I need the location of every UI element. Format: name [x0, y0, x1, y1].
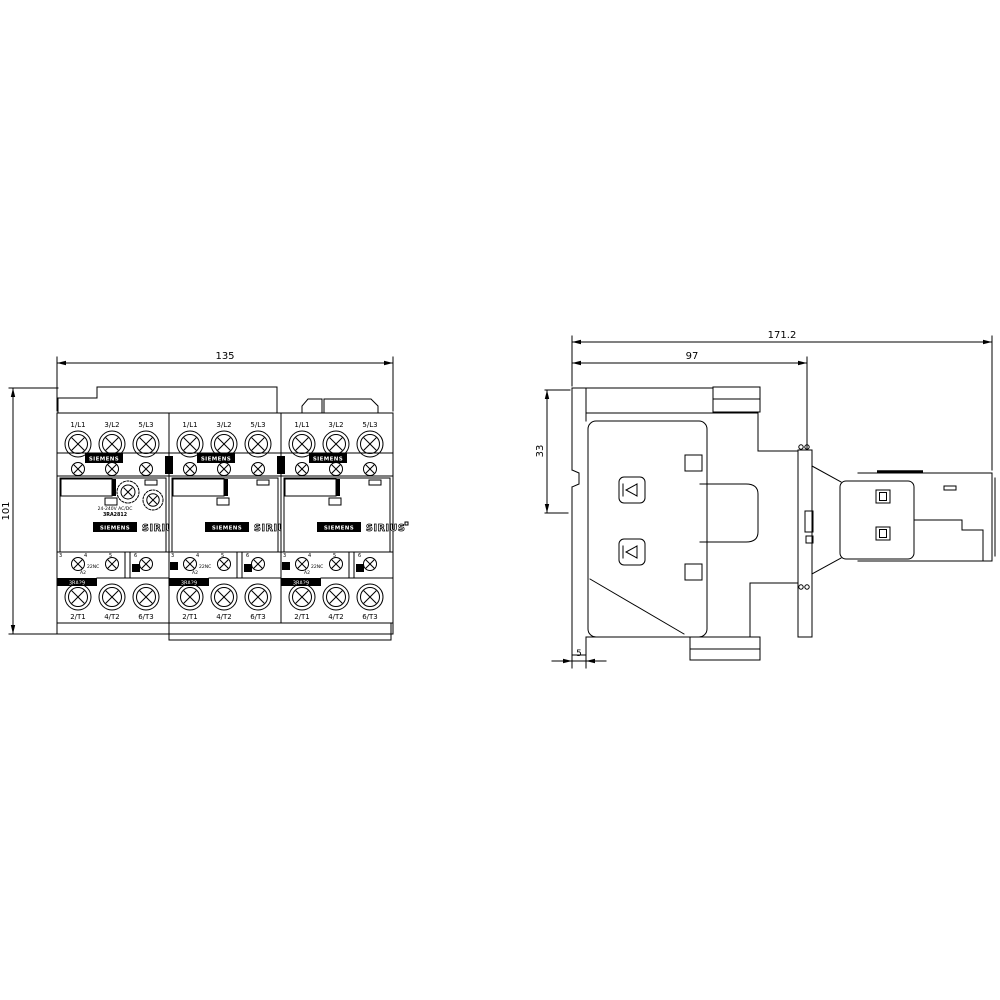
brand-nameplate-text: SIEMENS — [313, 457, 343, 463]
armature-hump — [700, 484, 758, 542]
coil-terminal-label: A2 — [80, 570, 86, 576]
function-module-part-number: 3RA2812 — [103, 512, 127, 518]
dimension-drawing-canvas: 135 101 1/L1 3/L2 5/L3 SI — [0, 0, 1000, 1000]
terminal-number: 3 — [283, 553, 286, 559]
arrowhead-down-icon — [11, 625, 15, 634]
trademark-square-icon — [405, 522, 408, 525]
rail-release-funnel-icon — [619, 539, 645, 565]
front-height-dimension: 101 — [1, 388, 58, 634]
top-terminal-cover — [713, 399, 760, 412]
bottom-mounting-strip — [57, 623, 393, 640]
terminal-label: 6/T3 — [250, 613, 266, 621]
side-clip-width-label: 5 — [576, 649, 582, 659]
screw-icon — [799, 445, 803, 449]
arrowhead-right-icon — [983, 340, 992, 344]
timer-module-body — [840, 481, 914, 559]
terminal-number: 6 — [358, 553, 361, 559]
terminal-label: 4/T2 — [216, 613, 232, 621]
terminal-label: 2/T1 — [294, 613, 310, 621]
arrowhead-left-icon — [586, 659, 595, 663]
terminal-number: 6 — [246, 553, 249, 559]
side-clip-width-dimension: 5 — [552, 649, 606, 668]
terminal-label: 1/L1 — [70, 421, 85, 429]
terminal-number: 4 — [196, 553, 199, 559]
arrowhead-left-icon — [572, 361, 581, 365]
front-height-label: 101 — [1, 501, 12, 520]
side-view-function-module — [812, 466, 995, 574]
bottom-terminal-cover — [690, 649, 760, 660]
side-total-depth-dimension: 171.2 — [572, 330, 992, 470]
screw-icon — [805, 585, 809, 589]
terminal-label: 5/L3 — [250, 421, 265, 429]
terminal-label: 1/L1 — [294, 421, 309, 429]
module-slot — [944, 486, 956, 490]
function-module-voltage: 24-240V AC/DC — [98, 506, 133, 512]
side-total-depth-label: 171.2 — [768, 330, 797, 341]
brand-badge-text: SIEMENS — [212, 526, 242, 532]
label-window — [173, 479, 224, 496]
screw-icon — [799, 585, 803, 589]
brand-badge-text: SIEMENS — [324, 526, 354, 532]
side-vent-window — [685, 455, 702, 471]
side-base-depth-dimension: 97 — [572, 351, 807, 449]
front-width-label: 135 — [215, 351, 234, 362]
aux-contact-label: 22NC — [87, 564, 99, 570]
front-width-dimension: 135 — [57, 351, 393, 411]
contactor-module-2: 1/L1 3/L2 5/L3 SIEMENS SIEMENS SIRIUS — [169, 413, 296, 623]
terminal-label: 6/T3 — [138, 613, 154, 621]
terminal-label: 1/L1 — [182, 421, 197, 429]
interlock-link-icon — [132, 564, 140, 572]
terminal-label: 5/L3 — [138, 421, 153, 429]
side-view-contactor-profile — [572, 387, 813, 660]
arrowhead-left-icon — [57, 361, 66, 365]
brand-nameplate-text: SIEMENS — [89, 457, 119, 463]
coil-terminal-label: A2 — [304, 570, 310, 576]
arrowhead-right-icon — [798, 361, 807, 365]
technical-drawing: 135 101 1/L1 3/L2 5/L3 SI — [0, 0, 1000, 1000]
terminal-label: 4/T2 — [328, 613, 344, 621]
terminal-label: 5/L3 — [362, 421, 377, 429]
top-terminal-cover — [713, 387, 760, 399]
din-clip-icon — [572, 388, 586, 655]
arrowhead-right-icon — [384, 361, 393, 365]
terminal-label: 2/T1 — [70, 613, 86, 621]
terminal-label: 3/L2 — [328, 421, 343, 429]
arrowhead-down-icon — [545, 504, 549, 513]
label-window — [61, 479, 112, 496]
coil-terminal-label: A2 — [192, 570, 198, 576]
aux-contact-label: 22NC — [311, 564, 323, 570]
side-rail-offset-dimension: 33 — [535, 390, 570, 513]
terminal-label: 3/L2 — [216, 421, 231, 429]
interlock-link-icon — [356, 564, 364, 572]
aux-contact-label: 22NC — [199, 564, 211, 570]
rail-release-funnel-icon — [619, 477, 645, 503]
terminal-number: 3 — [171, 553, 174, 559]
label-window — [285, 479, 336, 496]
arrowhead-left-icon — [572, 340, 581, 344]
arrowhead-up-icon — [11, 388, 15, 397]
contactor-module-1: 1/L1 3/L2 5/L3 SIEMENS — [57, 413, 184, 623]
terminal-label: 2/T1 — [182, 613, 198, 621]
brand-nameplate-text: SIEMENS — [201, 457, 231, 463]
interlock-link-icon — [244, 564, 252, 572]
side-rail-offset-label: 33 — [535, 445, 546, 458]
arrowhead-up-icon — [545, 390, 549, 399]
arrowhead-right-icon — [563, 659, 572, 663]
terminal-number: 4 — [84, 553, 87, 559]
terminal-number: 4 — [308, 553, 311, 559]
terminal-number: 3 — [59, 553, 62, 559]
bottom-terminal-cover — [690, 637, 760, 649]
contactor-module-3: 1/L1 3/L2 5/L3 SIEMENS SIEMENS SIRIUS — [281, 413, 408, 623]
series-logo: SIRIUS — [366, 523, 405, 534]
terminal-cover-bumps — [302, 399, 378, 413]
terminal-label: 4/T2 — [104, 613, 120, 621]
side-base-depth-label: 97 — [686, 351, 699, 362]
terminal-label: 6/T3 — [362, 613, 378, 621]
top-cover-outline — [58, 387, 277, 413]
terminal-label: 3/L2 — [104, 421, 119, 429]
housing-side-face — [588, 421, 707, 637]
terminal-number: 6 — [134, 553, 137, 559]
brand-badge-text: SIEMENS — [100, 526, 130, 532]
side-vent-window — [685, 564, 702, 580]
